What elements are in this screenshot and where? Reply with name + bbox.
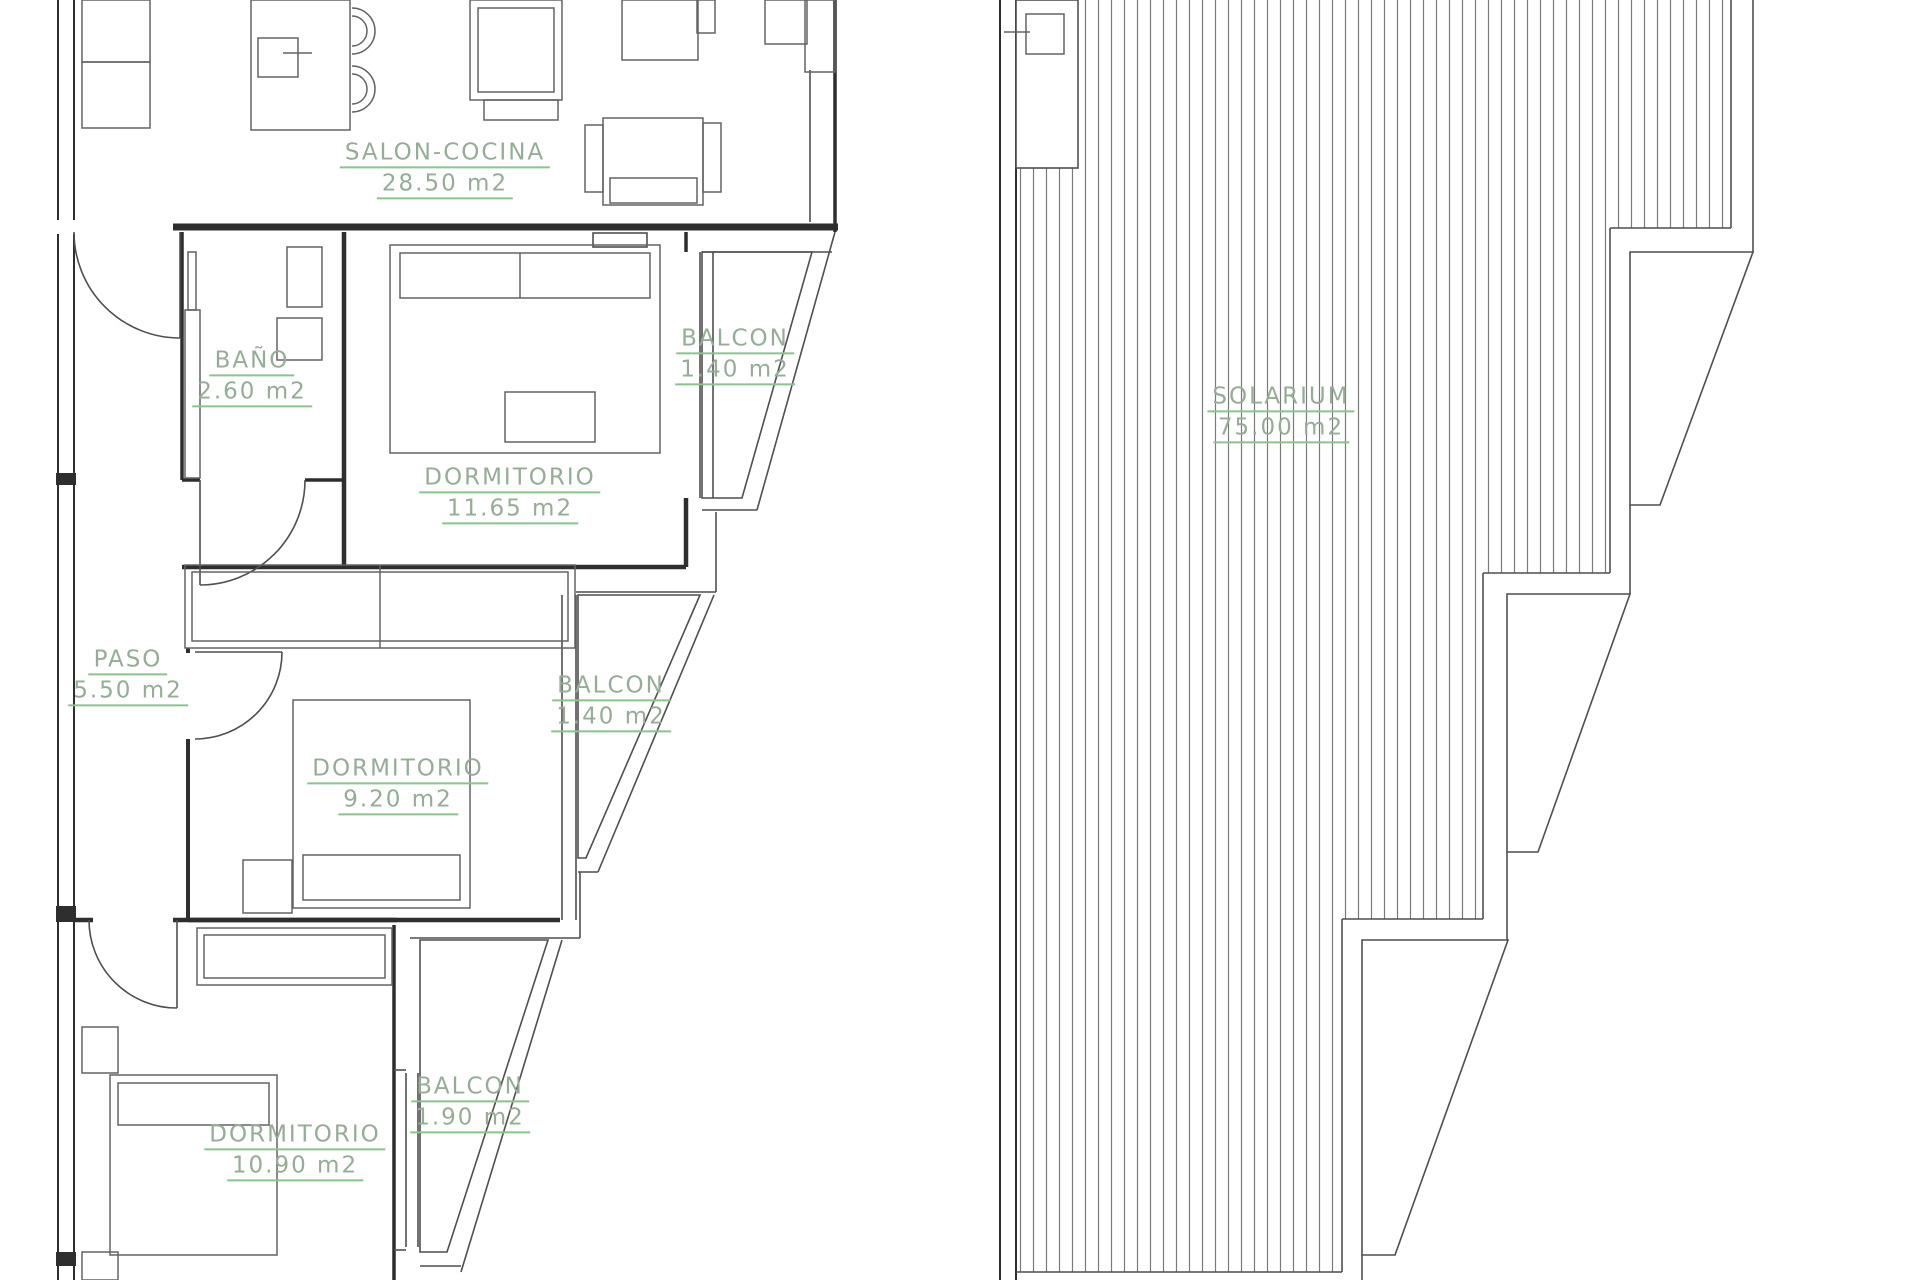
room-area: 11.65 m2 [442, 497, 578, 525]
room-label-salon-cocina: SALON-COCINA 28.50 m2 [340, 140, 550, 199]
room-label-balcon-3: BALCON 1.90 m2 [410, 1074, 530, 1133]
room-area: 1.40 m2 [675, 358, 795, 386]
room-area: 10.90 m2 [227, 1154, 363, 1182]
room-label-balcon-1: BALCON 1.40 m2 [675, 326, 795, 385]
floor-plan-page: SALON-COCINA 28.50 m2 BAÑO 2.60 m2 DORMI… [0, 0, 1920, 1280]
room-name: SALON-COCINA [340, 140, 550, 168]
room-name: BAÑO [210, 348, 295, 376]
room-name: SOLARIUM [1207, 384, 1354, 412]
room-area: 28.50 m2 [377, 172, 513, 200]
room-label-balcon-2: BALCON 1.40 m2 [551, 673, 671, 732]
room-label-solarium: SOLARIUM 75.00 m2 [1207, 384, 1354, 443]
room-label-paso: PASO 5.50 m2 [68, 647, 188, 706]
room-area: 2.60 m2 [192, 380, 312, 408]
room-area: 75.00 m2 [1213, 416, 1349, 444]
room-label-dormitorio-2: DORMITORIO 9.20 m2 [307, 756, 488, 815]
room-name: DORMITORIO [419, 465, 600, 493]
room-name: BALCON [552, 673, 670, 701]
room-area: 1.40 m2 [551, 705, 671, 733]
room-name: DORMITORIO [307, 756, 488, 784]
room-area: 5.50 m2 [68, 679, 188, 707]
room-area: 9.20 m2 [338, 788, 458, 816]
roof-floor-plan [1000, 0, 1753, 1280]
room-area: 1.90 m2 [410, 1106, 530, 1134]
floor-plan-drawing [0, 0, 1920, 1280]
room-label-bano: BAÑO 2.60 m2 [192, 348, 312, 407]
room-label-dormitorio-1: DORMITORIO 11.65 m2 [419, 465, 600, 524]
room-name: BALCON [676, 326, 794, 354]
room-name: PASO [89, 647, 168, 675]
room-label-dormitorio-3: DORMITORIO 10.90 m2 [204, 1122, 385, 1181]
solarium-hatch-area [1016, 0, 1731, 1272]
room-name: DORMITORIO [204, 1122, 385, 1150]
room-name: BALCON [411, 1074, 529, 1102]
